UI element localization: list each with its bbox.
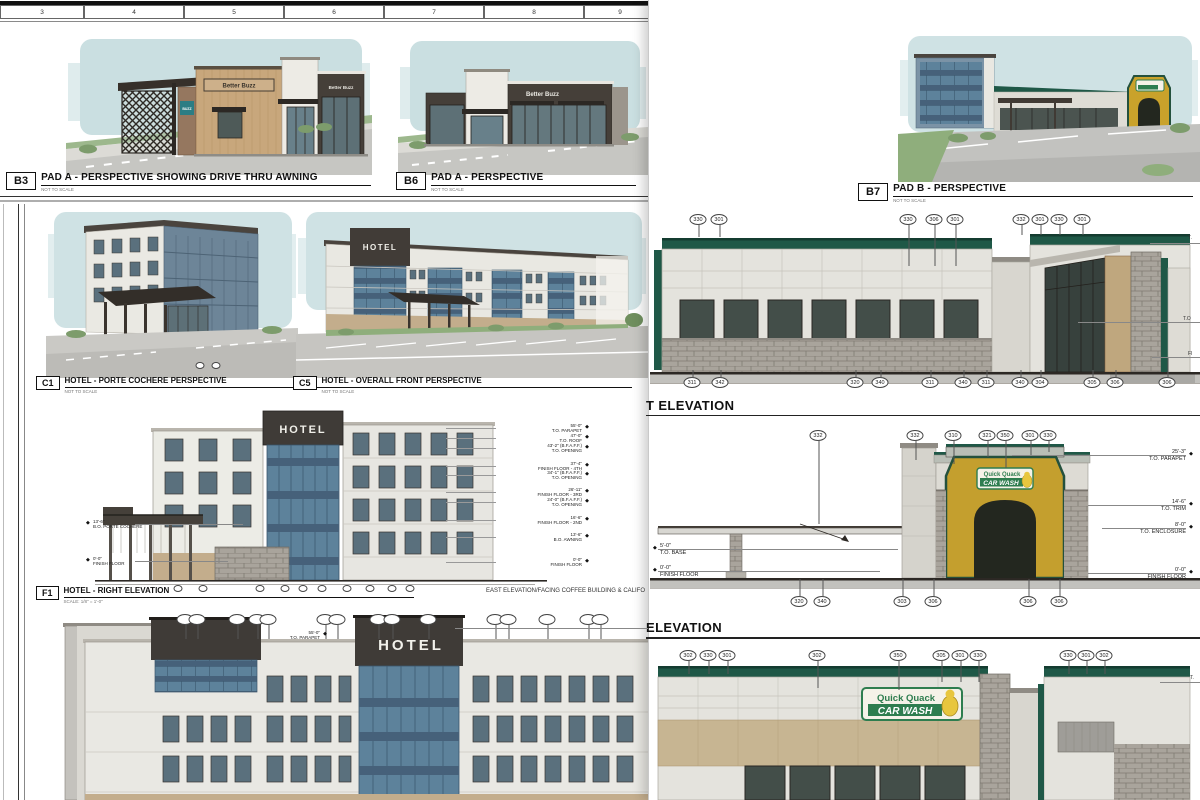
callout-number: 330 bbox=[973, 653, 982, 659]
dimension-label: T.O. OPENING bbox=[498, 448, 582, 453]
callout-bubble: 332 bbox=[810, 430, 827, 441]
leader-line bbox=[455, 628, 648, 629]
leader-line bbox=[1152, 357, 1200, 358]
callout-bubble bbox=[500, 614, 517, 625]
callout-bubble: 302 bbox=[809, 650, 826, 661]
callout-leader bbox=[719, 224, 720, 237]
south-heading-underline bbox=[646, 637, 1200, 639]
callout-leader bbox=[547, 624, 548, 639]
hotel-sign-text-elevation: HOTEL bbox=[279, 424, 326, 436]
callout-number: 303 bbox=[897, 599, 906, 605]
callout-bubble: 305 bbox=[933, 650, 950, 661]
callout-leader bbox=[799, 579, 800, 597]
callout-leader bbox=[978, 660, 979, 682]
callout-leader bbox=[197, 624, 198, 639]
callout-leader bbox=[930, 370, 931, 378]
stone-veneer-pier bbox=[215, 547, 289, 580]
sheet-divider-line bbox=[0, 196, 649, 197]
callout-leader bbox=[953, 440, 954, 464]
east-elevation-heading: T ELEVATION bbox=[646, 398, 734, 413]
duck-mascot-icon-2 bbox=[942, 696, 958, 716]
leader-line bbox=[135, 524, 243, 525]
callout-leader bbox=[337, 624, 338, 639]
car-wash-tunnel-opening bbox=[974, 500, 1036, 578]
callout-bubble: 340 bbox=[872, 377, 889, 388]
dimension-row: 16'-6" FINISH FLOOR - 2ND bbox=[498, 515, 582, 525]
callout-bubble: 320 bbox=[847, 377, 864, 388]
callout-bubble: 301 bbox=[1022, 430, 1039, 441]
callout-bubble: 301 bbox=[1078, 650, 1095, 661]
callout-bubble: 350 bbox=[890, 650, 907, 661]
callout-bubble: 330 bbox=[690, 214, 707, 225]
hotel-porte-cochere-perspective-figure bbox=[46, 210, 298, 378]
callout-leader bbox=[1040, 224, 1041, 235]
callout-leader bbox=[257, 624, 258, 639]
callout-leader bbox=[955, 224, 956, 266]
callout-number: 330 bbox=[903, 217, 912, 223]
panel-scale-b6: NOT TO SCALE bbox=[431, 187, 636, 192]
callout-number: 306 bbox=[1162, 380, 1171, 386]
panel-code-c5: C5 bbox=[293, 376, 317, 390]
callout-leader bbox=[1086, 660, 1087, 674]
panel-title-text-f1: HOTEL - RIGHT ELEVATION bbox=[64, 586, 414, 598]
panel-title-c1: C1 HOTEL - PORTE COCHERE PERSPECTIVE NOT… bbox=[36, 376, 335, 394]
panel-title-c5: C5 HOTEL - OVERALL FRONT PERSPECTIVE NOT… bbox=[293, 376, 632, 394]
level-label-fragment: T. bbox=[1190, 675, 1194, 681]
sheet-divider-shadow bbox=[0, 200, 649, 203]
callout-bubble: 311 bbox=[684, 377, 701, 388]
callout-leader bbox=[508, 624, 509, 639]
callout-leader bbox=[934, 224, 935, 266]
parapet-sign-box-left bbox=[151, 620, 261, 660]
callout-leader bbox=[692, 370, 693, 378]
callout-bubble: 311 bbox=[978, 377, 995, 388]
callout-leader bbox=[880, 370, 881, 378]
callout-leader bbox=[855, 370, 856, 378]
callout-number: 305 bbox=[936, 653, 945, 659]
callout-bubble bbox=[196, 362, 205, 369]
panel-title-b6: B6 PAD A - PERSPECTIVE NOT TO SCALE bbox=[396, 172, 636, 192]
callout-leader bbox=[600, 624, 601, 639]
drawing-sheet-page: 3456789 BUZZ Better Buzz Better Buzz bbox=[0, 0, 1200, 800]
panel-title-text-b6: PAD A - PERSPECTIVE bbox=[431, 172, 636, 186]
callout-leader bbox=[237, 624, 238, 639]
quick-quack-text: Quick Quack bbox=[984, 472, 1021, 478]
vacuum-canopy bbox=[658, 528, 910, 534]
callout-leader bbox=[698, 224, 699, 237]
callout-number: 320 bbox=[850, 380, 859, 386]
ruler-cell: 5 bbox=[184, 5, 284, 19]
callout-bubble: 301 bbox=[952, 650, 969, 661]
callout-number: 330 bbox=[703, 653, 712, 659]
panel-title-text-b3: PAD A - PERSPECTIVE SHOWING DRIVE THRU A… bbox=[41, 172, 371, 186]
pad-a-drive-thru-perspective-figure: BUZZ Better Buzz Better Buzz bbox=[66, 33, 372, 175]
callout-number: 306 bbox=[1110, 380, 1119, 386]
dimension-label: T.O. OPENING bbox=[498, 475, 582, 480]
callout-number: 302 bbox=[1099, 653, 1108, 659]
callout-number: 311 bbox=[982, 380, 991, 386]
callout-leader bbox=[720, 370, 721, 378]
callout-leader bbox=[915, 440, 916, 460]
panel-code-b7: B7 bbox=[858, 183, 888, 201]
car-wash-text-2: CAR WASH bbox=[878, 706, 933, 717]
ruler-cell: 4 bbox=[84, 5, 184, 19]
panel-scale-b3: NOT TO SCALE bbox=[41, 187, 371, 192]
callout-leader bbox=[963, 370, 964, 378]
callout-number: 311 bbox=[926, 380, 935, 386]
dimension-row: 47'-0" T.O. ROOF bbox=[498, 433, 582, 443]
dimension-row: 55'-0" T.O. PARAPET bbox=[498, 423, 582, 433]
callout-bubble bbox=[229, 614, 246, 625]
callout-leader bbox=[1068, 660, 1069, 674]
level-label-fragment: T.O bbox=[1183, 316, 1191, 322]
better-buzz-sign-text-3: Better Buzz bbox=[526, 92, 559, 98]
callout-leader bbox=[1059, 579, 1060, 597]
leader-line bbox=[135, 561, 228, 562]
callout-bubble: 301 bbox=[711, 214, 728, 225]
quick-quack-text-2: Quick Quack bbox=[877, 693, 936, 704]
hotel-overall-front-perspective-figure: HOTEL bbox=[296, 208, 648, 378]
callout-number: 330 bbox=[1054, 217, 1063, 223]
leader-line bbox=[1078, 322, 1200, 323]
better-buzz-sign-text-2: Better Buzz bbox=[329, 85, 355, 90]
callout-leader bbox=[1104, 660, 1105, 674]
callout-bubble: 306 bbox=[925, 596, 942, 607]
sheet-top-border bbox=[0, 1, 656, 5]
callout-leader bbox=[818, 440, 819, 524]
callout-leader bbox=[1167, 358, 1168, 378]
callout-number: 301 bbox=[955, 653, 964, 659]
callout-bubble: 330 bbox=[700, 650, 717, 661]
dimension-row: 43'-2" (B.F.A.F.F.) T.O. OPENING bbox=[498, 443, 582, 453]
callout-bubble bbox=[539, 614, 556, 625]
callout-bubble: 301 bbox=[1074, 214, 1091, 225]
callout-bubble: 340 bbox=[955, 377, 972, 388]
callout-bubble: 301 bbox=[947, 214, 964, 225]
callout-leader bbox=[960, 660, 961, 682]
callout-bubble: 350 bbox=[997, 430, 1014, 441]
quick-quack-wall-sign: Quick Quack CAR WASH bbox=[862, 688, 962, 720]
quick-quack-logo-arch: Quick Quack CAR WASH bbox=[977, 468, 1033, 489]
car-wash-text: CAR WASH bbox=[983, 480, 1019, 487]
east-elevation-facing-note: EAST ELEVATION/FACING COFFEE BUILDING & … bbox=[385, 588, 645, 594]
pad-b-perspective-figure bbox=[898, 30, 1200, 182]
callout-leader bbox=[378, 624, 379, 639]
callout-number: 306 bbox=[1054, 599, 1063, 605]
callout-number: 311 bbox=[688, 380, 697, 386]
level-label-fragment: T. bbox=[1188, 235, 1192, 241]
panel-code-f1: F1 bbox=[36, 586, 59, 600]
callout-bubble: 306 bbox=[1020, 596, 1037, 607]
callout-bubble bbox=[260, 614, 277, 625]
callout-bubble: 311 bbox=[922, 377, 939, 388]
callout-number: 306 bbox=[928, 599, 937, 605]
callout-leader bbox=[495, 624, 496, 639]
callout-bubble: 330 bbox=[1060, 650, 1077, 661]
callout-leader bbox=[1040, 370, 1041, 378]
callout-number: 301 bbox=[1025, 433, 1034, 439]
callout-number: 301 bbox=[714, 217, 723, 223]
dimension-label: FINISH FLOOR - 2ND bbox=[498, 520, 582, 525]
dimension-row: 34'-1" (B.F.A.F.F.) T.O. OPENING bbox=[498, 470, 582, 480]
callout-number: 350 bbox=[1000, 433, 1009, 439]
callout-leader bbox=[392, 624, 393, 639]
callout-leader bbox=[185, 624, 186, 639]
dimension-label: T.O. TRIM bbox=[1098, 506, 1186, 513]
callout-number: 301 bbox=[950, 217, 959, 223]
callout-number: 332 bbox=[813, 433, 822, 439]
callout-leader bbox=[1092, 370, 1093, 378]
callout-number: 320 bbox=[794, 599, 803, 605]
callout-bubble bbox=[189, 614, 206, 625]
dimension-row: 8'-0" T.O. ENCLOSURE bbox=[1098, 522, 1186, 535]
panel-code-b3: B3 bbox=[6, 172, 36, 190]
callout-number: 332 bbox=[910, 433, 919, 439]
callout-leader bbox=[708, 660, 709, 674]
callout-bubble: 330 bbox=[900, 214, 917, 225]
sheet-left-border-inner bbox=[24, 204, 25, 800]
sheet-left-edge bbox=[3, 204, 4, 800]
callout-number: 340 bbox=[958, 380, 967, 386]
callout-number: 302 bbox=[812, 653, 821, 659]
callout-leader bbox=[986, 370, 987, 378]
callout-bubble bbox=[384, 614, 401, 625]
callout-leader bbox=[1005, 440, 1006, 468]
callout-bubble: 301 bbox=[719, 650, 736, 661]
ruler-cell: 3 bbox=[0, 5, 84, 19]
dimension-label: T.O. OPENING bbox=[498, 502, 582, 507]
ruler-cell: 9 bbox=[584, 5, 656, 19]
callout-leader bbox=[941, 660, 942, 682]
ruler-cell: 7 bbox=[384, 5, 484, 19]
panel-scale-b7: NOT TO SCALE bbox=[893, 198, 1193, 203]
callout-leader bbox=[688, 660, 689, 674]
panel-title-f1: F1 HOTEL - RIGHT ELEVATION SCALE: 1/8" =… bbox=[36, 586, 414, 604]
callout-number: 342 bbox=[715, 380, 724, 386]
callout-bubble: 302 bbox=[1096, 650, 1113, 661]
callout-number: 330 bbox=[693, 217, 702, 223]
panel-scale-f1: SCALE: 1/8" = 1'-0" bbox=[64, 599, 414, 604]
callout-bubble: 306 bbox=[1051, 596, 1068, 607]
callout-number: 350 bbox=[893, 653, 902, 659]
hotel-front-elevation-figure: HOTEL bbox=[55, 606, 649, 800]
callout-number: 301 bbox=[722, 653, 731, 659]
callout-bubble: 340 bbox=[1012, 377, 1029, 388]
callout-number: 330 bbox=[1043, 433, 1052, 439]
callout-leader bbox=[1030, 440, 1031, 455]
callout-leader bbox=[1115, 370, 1116, 378]
dimension-row: 25'-3" T.O. PARAPET bbox=[1098, 449, 1186, 462]
callout-bubble bbox=[212, 362, 221, 369]
panel-scale-c5: NOT TO SCALE bbox=[322, 389, 632, 394]
callout-leader bbox=[727, 660, 728, 674]
hotel-parapet-dimension: 55'-0" T.O. PARAPET bbox=[268, 630, 320, 640]
car-wash-east-elevation-figure bbox=[650, 226, 1200, 388]
callout-number: 301 bbox=[1035, 217, 1044, 223]
dimension-label: T.O. PARAPET bbox=[268, 635, 320, 640]
callout-bubble: 310 bbox=[945, 430, 962, 441]
dimension-label: T.O. PARAPET bbox=[1098, 456, 1186, 463]
panel-code-c1: C1 bbox=[36, 376, 60, 390]
car-wash-north-elevation-figure: Quick Quack CAR WASH bbox=[650, 648, 1200, 800]
callout-leader bbox=[908, 224, 909, 266]
callout-number: 304 bbox=[1035, 380, 1044, 386]
dimension-row: 0'-0" FINISH FLOOR bbox=[498, 557, 582, 567]
callout-leader bbox=[933, 579, 934, 597]
callout-bubble: 330 bbox=[1040, 430, 1057, 441]
callout-leader bbox=[1082, 224, 1083, 235]
callout-bubble: 330 bbox=[970, 650, 987, 661]
callout-bubble: 301 bbox=[1032, 214, 1049, 225]
callout-number: 340 bbox=[875, 380, 884, 386]
panel-title-b3: B3 PAD A - PERSPECTIVE SHOWING DRIVE THR… bbox=[6, 172, 371, 192]
dimension-label: FINISH FLOOR bbox=[660, 572, 740, 579]
pad-a-perspective-figure: Better Buzz bbox=[398, 33, 648, 175]
callout-leader bbox=[1020, 370, 1021, 378]
callout-bubble bbox=[420, 614, 437, 625]
sheet-left-border bbox=[18, 204, 19, 800]
callout-number: 332 bbox=[1016, 217, 1025, 223]
callout-leader bbox=[1059, 224, 1060, 235]
callout-leader bbox=[822, 579, 823, 597]
callout-bubble: 303 bbox=[894, 596, 911, 607]
callout-bubble: 330 bbox=[1051, 214, 1068, 225]
better-buzz-sign-text: Better Buzz bbox=[222, 84, 255, 90]
dimension-row: 24'-0" (B.F.A.F.F.) T.O. OPENING bbox=[498, 497, 582, 507]
dimension-label: B.O. AWNING bbox=[498, 537, 582, 542]
dimension-row: 0'-0" FINISH FLOOR bbox=[660, 565, 740, 578]
callout-bubble: 304 bbox=[1032, 377, 1049, 388]
panel-code-b6: B6 bbox=[396, 172, 426, 190]
callout-number: 340 bbox=[1015, 380, 1024, 386]
callout-bubble: 306 bbox=[1107, 377, 1124, 388]
dimension-row: 14'-6" T.O. TRIM bbox=[1098, 499, 1186, 512]
ruler-cell: 6 bbox=[284, 5, 384, 19]
callout-number: 301 bbox=[1077, 217, 1086, 223]
callout-number: 321 bbox=[982, 433, 991, 439]
callout-bubble: 342 bbox=[712, 377, 729, 388]
dimension-row: 5'-0" T.O. BASE bbox=[660, 543, 740, 556]
callout-number: 302 bbox=[683, 653, 692, 659]
south-elevation-heading: ELEVATION bbox=[646, 620, 722, 635]
dimension-row: 0'-0" FINISH FLOOR bbox=[1098, 567, 1186, 580]
callout-bubble: 302 bbox=[680, 650, 697, 661]
callout-bubble: 332 bbox=[1013, 214, 1030, 225]
callout-leader bbox=[817, 660, 818, 688]
callout-leader bbox=[987, 440, 988, 457]
hotel-sign-text-front: HOTEL bbox=[378, 637, 444, 654]
callout-leader bbox=[428, 624, 429, 639]
callout-number: 330 bbox=[1063, 653, 1072, 659]
callout-leader bbox=[588, 624, 589, 639]
callout-bubble: 305 bbox=[1084, 377, 1101, 388]
drive-thru-lattice-screen bbox=[122, 91, 174, 153]
callout-bubble: 332 bbox=[907, 430, 924, 441]
callout-number: 305 bbox=[1087, 380, 1096, 386]
callout-number: 306 bbox=[929, 217, 938, 223]
callout-number: 301 bbox=[1081, 653, 1090, 659]
callout-bubble: 320 bbox=[791, 596, 808, 607]
callout-leader bbox=[1028, 579, 1029, 597]
leader-line bbox=[1150, 243, 1200, 244]
dimension-label: T.O. BASE bbox=[660, 550, 740, 557]
callout-leader bbox=[898, 660, 899, 690]
callout-leader bbox=[1021, 224, 1022, 235]
dimension-label: FINISH FLOOR bbox=[498, 562, 582, 567]
callout-bubble bbox=[592, 614, 609, 625]
callout-bubble: 321 bbox=[979, 430, 996, 441]
callout-bubble bbox=[329, 614, 346, 625]
panel-title-text-b7: PAD B - PERSPECTIVE bbox=[893, 183, 1193, 197]
callout-bubble: 306 bbox=[1159, 377, 1176, 388]
callout-bubble: 340 bbox=[814, 596, 831, 607]
callout-number: 340 bbox=[817, 599, 826, 605]
level-label-fragment: FI bbox=[1188, 351, 1192, 357]
dimension-label: FINISH FLOOR bbox=[1098, 574, 1186, 581]
dimension-label: T.O. ENCLOSURE bbox=[1098, 529, 1186, 536]
east-heading-underline bbox=[646, 415, 1200, 416]
callout-bubble: 306 bbox=[926, 214, 943, 225]
callout-leader bbox=[1048, 440, 1049, 452]
panel-title-text-c5: HOTEL - OVERALL FRONT PERSPECTIVE bbox=[322, 376, 632, 388]
panel-title-b7: B7 PAD B - PERSPECTIVE NOT TO SCALE bbox=[858, 183, 1193, 203]
callout-leader bbox=[902, 579, 903, 597]
ruler-cell: 8 bbox=[484, 5, 584, 19]
leader-line bbox=[1160, 682, 1200, 683]
callout-number: 310 bbox=[948, 433, 957, 439]
buzz-sign-text: BUZZ bbox=[182, 107, 192, 111]
dimension-row: 26'-11" FINISH FLOOR - 3RD bbox=[498, 487, 582, 497]
ruler-shadow-line bbox=[0, 21, 656, 23]
dimension-row: 13'-6" B.O. AWNING bbox=[498, 532, 582, 542]
callout-number: 306 bbox=[1023, 599, 1032, 605]
hotel-sign-text: HOTEL bbox=[363, 243, 398, 252]
